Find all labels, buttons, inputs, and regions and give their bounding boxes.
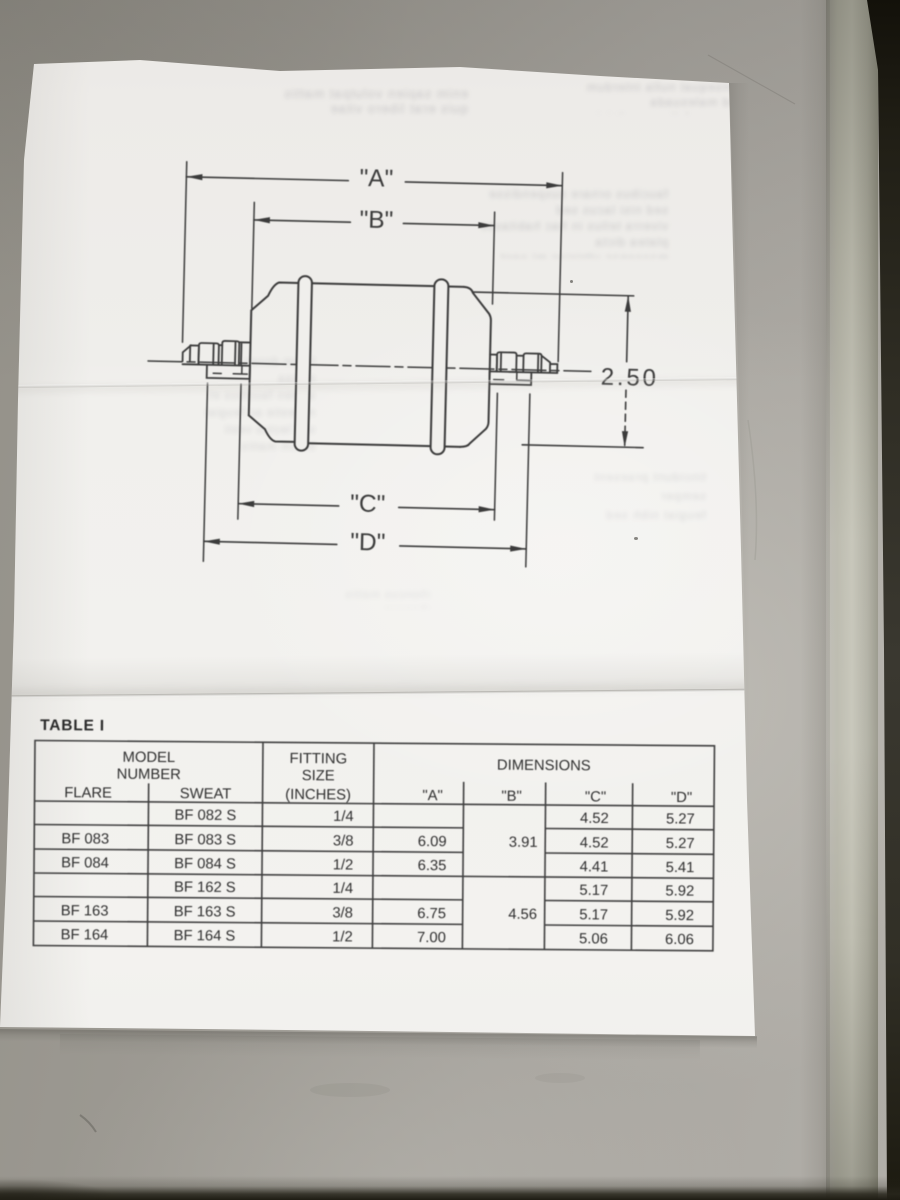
svg-text:3.91: 3.91 [509, 835, 538, 851]
svg-text:5.06: 5.06 [579, 931, 608, 947]
svg-text:BF 083 S: BF 083 S [174, 832, 236, 848]
svg-text:6.35: 6.35 [418, 858, 447, 874]
svg-text:"B": "B" [501, 789, 522, 805]
svg-text:"A": "A" [422, 788, 443, 804]
svg-text:5.27: 5.27 [666, 811, 695, 827]
svg-text:4.52: 4.52 [580, 811, 609, 827]
svg-text:BF 082 S: BF 082 S [175, 808, 237, 824]
svg-text:NUMBER: NUMBER [117, 767, 181, 784]
svg-text:BF 164: BF 164 [61, 927, 109, 943]
svg-text:5.92: 5.92 [665, 908, 694, 924]
svg-text:3/8: 3/8 [332, 905, 353, 921]
svg-text:1/2: 1/2 [332, 929, 353, 945]
svg-text:BF 162 S: BF 162 S [174, 880, 236, 896]
svg-text:5.17: 5.17 [579, 883, 608, 899]
svg-text:FLARE: FLARE [64, 785, 112, 801]
svg-text:6.06: 6.06 [665, 932, 694, 948]
svg-text:TABLE I: TABLE I [40, 717, 105, 735]
svg-text:5.27: 5.27 [666, 836, 695, 852]
svg-text:1/4: 1/4 [332, 881, 353, 897]
svg-text:1/4: 1/4 [333, 809, 354, 825]
svg-text:4.56: 4.56 [508, 907, 537, 923]
svg-text:BF 164 S: BF 164 S [174, 928, 236, 944]
svg-text:SIZE: SIZE [302, 768, 335, 784]
svg-text:BF 163: BF 163 [61, 903, 109, 919]
svg-text:"D": "D" [671, 790, 692, 806]
svg-text:BF 084 S: BF 084 S [174, 856, 236, 872]
svg-text:"C": "C" [585, 789, 606, 805]
svg-text:5.92: 5.92 [665, 883, 694, 899]
svg-text:3/8: 3/8 [333, 833, 354, 849]
svg-text:FITTING: FITTING [290, 751, 348, 767]
svg-text:DIMENSIONS: DIMENSIONS [497, 758, 591, 775]
svg-text:(INCHES): (INCHES) [285, 787, 351, 804]
svg-text:BF 083: BF 083 [61, 831, 109, 847]
svg-text:7.00: 7.00 [417, 930, 446, 946]
svg-text:5.17: 5.17 [579, 907, 608, 923]
svg-text:4.41: 4.41 [580, 859, 609, 875]
svg-text:4.52: 4.52 [580, 835, 609, 851]
svg-text:BF 084: BF 084 [61, 855, 109, 871]
svg-text:5.41: 5.41 [666, 860, 695, 876]
svg-text:1/2: 1/2 [333, 857, 354, 873]
svg-text:6.09: 6.09 [418, 834, 447, 850]
svg-text:6.75: 6.75 [417, 906, 446, 922]
svg-text:BF 163 S: BF 163 S [174, 904, 236, 920]
svg-text:SWEAT: SWEAT [180, 786, 232, 802]
svg-text:MODEL: MODEL [122, 750, 175, 766]
